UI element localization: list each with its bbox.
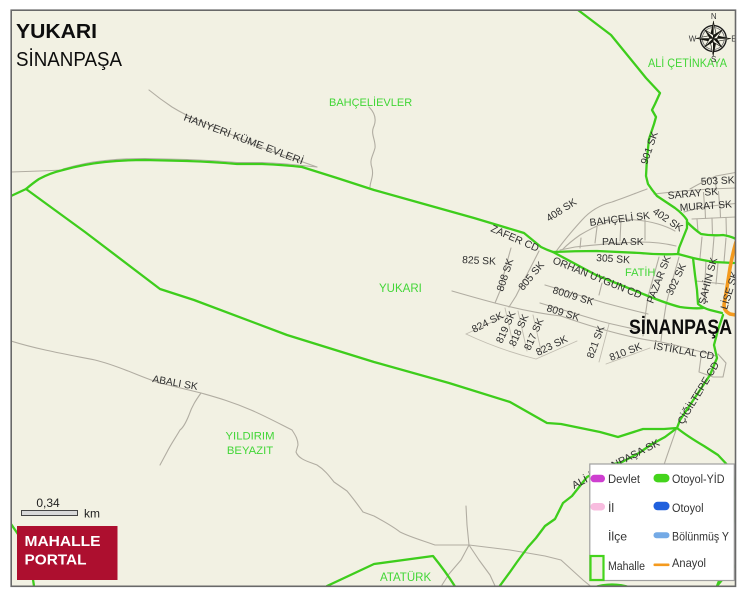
svg-text:BAHÇELİEVLER: BAHÇELİEVLER: [329, 96, 412, 109]
svg-text:BEYAZIT: BEYAZIT: [227, 445, 273, 457]
svg-text:Mahalle: Mahalle: [608, 559, 645, 573]
svg-text:MAHALLE: MAHALLE: [25, 534, 101, 550]
svg-text:Otoyol-YİD: Otoyol-YİD: [672, 472, 725, 486]
svg-text:0,34: 0,34: [36, 496, 60, 510]
svg-text:İlçe: İlçe: [608, 530, 627, 544]
svg-text:FATİH: FATİH: [625, 266, 655, 279]
svg-text:Devlet: Devlet: [608, 472, 641, 486]
svg-text:W: W: [689, 34, 697, 43]
svg-text:Otoyol: Otoyol: [672, 501, 704, 515]
svg-text:YUKARI: YUKARI: [379, 283, 422, 295]
svg-text:Anayol: Anayol: [672, 556, 706, 570]
svg-text:503 SK: 503 SK: [701, 175, 735, 188]
svg-text:S: S: [711, 55, 716, 64]
svg-text:km: km: [84, 507, 100, 521]
svg-text:Bölünmüş Y: Bölünmüş Y: [672, 530, 729, 544]
svg-text:SİNANPAŞA: SİNANPAŞA: [16, 48, 123, 71]
svg-text:825 SK: 825 SK: [462, 255, 496, 268]
svg-text:SİNANPAŞA: SİNANPAŞA: [629, 316, 732, 339]
svg-text:PALA SK: PALA SK: [602, 237, 644, 248]
svg-text:PORTAL: PORTAL: [25, 553, 87, 569]
svg-text:YILDIRIM: YILDIRIM: [226, 431, 275, 443]
svg-text:YUKARI: YUKARI: [16, 21, 97, 43]
svg-text:N: N: [711, 12, 717, 21]
svg-text:İl: İl: [608, 501, 614, 515]
svg-text:ATATÜRK: ATATÜRK: [380, 572, 431, 584]
